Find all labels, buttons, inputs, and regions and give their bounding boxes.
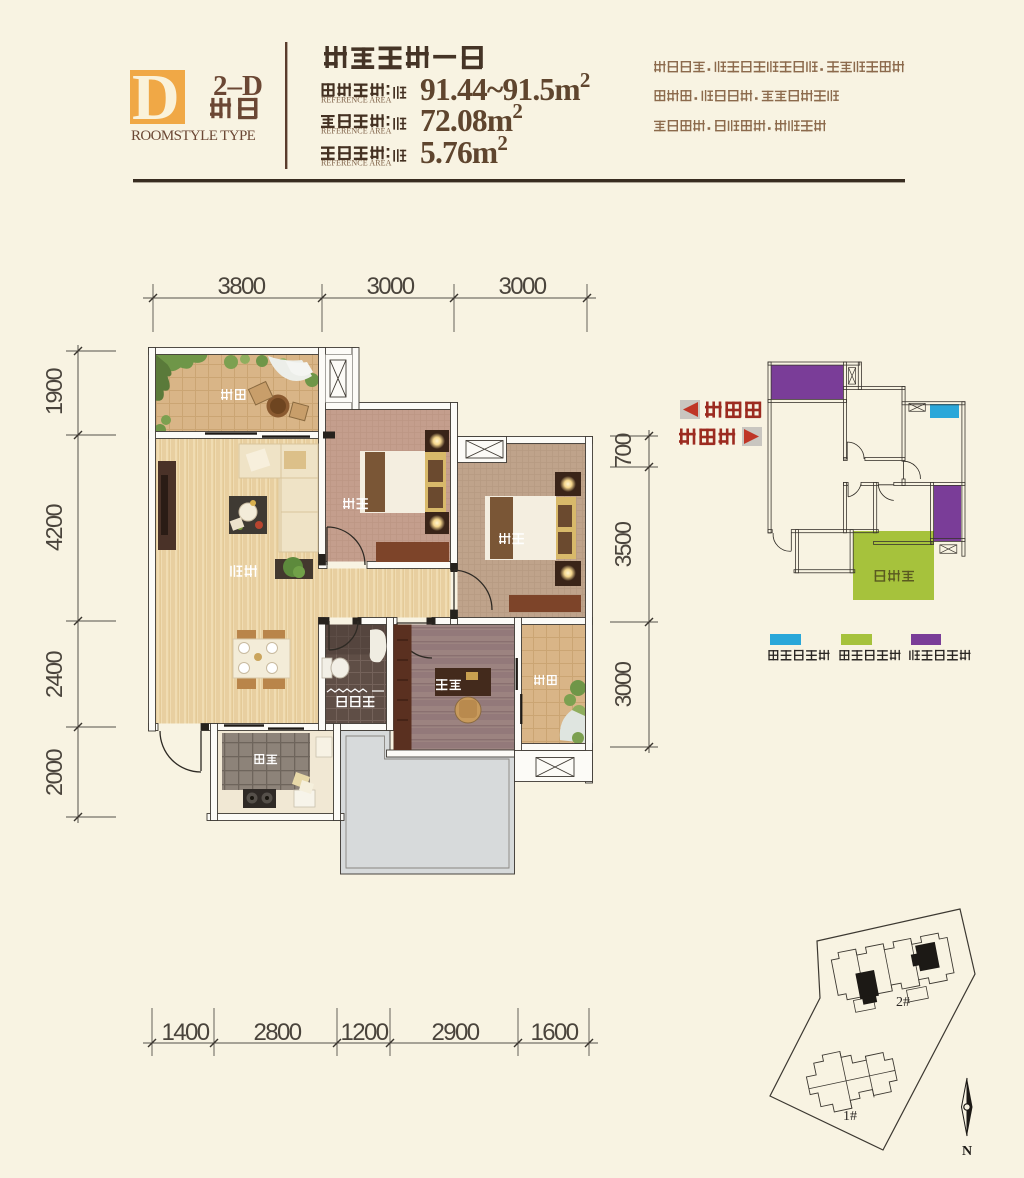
svg-text:2900: 2900 [432, 1019, 480, 1046]
svg-text:REFERENCE AREA: REFERENCE AREA [321, 159, 392, 168]
svg-text:N: N [962, 1144, 972, 1159]
svg-text:1#: 1# [843, 1109, 857, 1124]
svg-text:3500: 3500 [610, 522, 636, 568]
svg-text:3000: 3000 [499, 273, 547, 300]
svg-text:4200: 4200 [41, 504, 67, 551]
svg-text:91.44~91.5m2: 91.44~91.5m2 [420, 68, 590, 107]
svg-text:D: D [132, 61, 180, 134]
svg-text:3000: 3000 [367, 273, 415, 300]
svg-text:1600: 1600 [531, 1019, 579, 1046]
svg-text:2400: 2400 [41, 651, 67, 698]
svg-text:REFERENCE AREA: REFERENCE AREA [321, 96, 392, 105]
svg-text:2–D: 2–D [213, 70, 263, 102]
svg-text:2#: 2# [896, 995, 910, 1010]
svg-text:REFERENCE AREA: REFERENCE AREA [321, 127, 392, 136]
svg-text:1900: 1900 [41, 368, 67, 415]
svg-text:1400: 1400 [162, 1019, 210, 1046]
svg-text:2800: 2800 [254, 1019, 302, 1046]
svg-text:3800: 3800 [218, 273, 266, 300]
svg-text:2000: 2000 [41, 749, 67, 796]
svg-text:1200: 1200 [341, 1019, 389, 1046]
svg-text:700: 700 [610, 433, 636, 467]
svg-text:ROOMSTYLE TYPE: ROOMSTYLE TYPE [131, 128, 256, 144]
svg-text:5.76m2: 5.76m2 [420, 131, 507, 170]
svg-text:3000: 3000 [610, 662, 636, 708]
